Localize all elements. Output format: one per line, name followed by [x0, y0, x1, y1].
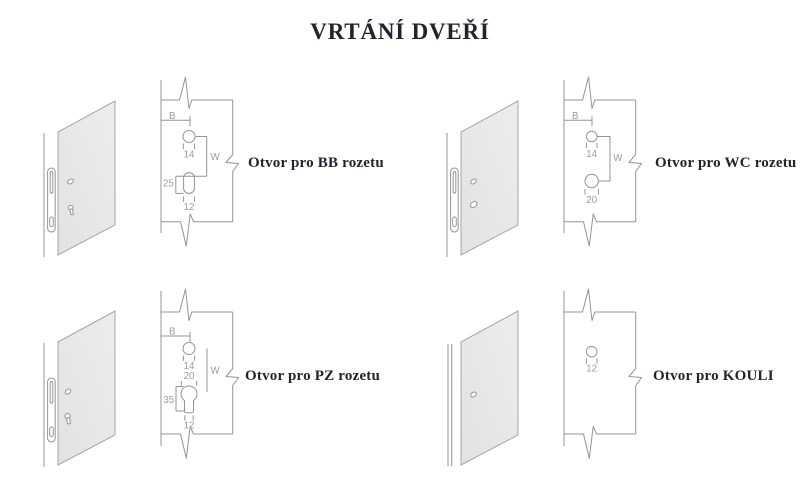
break-line-top — [564, 289, 636, 321]
door-illustration-pz — [44, 311, 115, 467]
drawing-bb: B 14 W 25 12 — [161, 77, 239, 246]
dim-20-label: 20 — [586, 195, 597, 206]
dim-12-label: 12 — [586, 364, 597, 375]
dim-14-ticks — [183, 144, 194, 150]
break-line-bottom — [161, 426, 233, 458]
diagram-canvas: B 14 W 25 12 B — [0, 0, 800, 499]
callout-kouli: Otvor pro KOULI — [653, 369, 774, 384]
handle-hole — [183, 131, 195, 143]
wc-turn-hole — [585, 174, 598, 187]
deadbolt-cutout — [453, 217, 457, 227]
break-line-top — [161, 289, 233, 321]
dim-20-ticks — [585, 189, 598, 195]
dim-w-label: W — [211, 366, 221, 377]
latch-cutout — [50, 172, 53, 194]
latch-cutout — [453, 172, 456, 194]
callout-pz: Otvor pro PZ rozetu — [245, 369, 380, 384]
door-drilling-diagram: VRTÁNÍ DVEŘÍ — [0, 0, 800, 499]
door-face — [58, 101, 115, 255]
dim-25-bracket — [176, 176, 184, 193]
break-line-right — [226, 100, 239, 222]
break-line-bottom — [564, 214, 636, 246]
dim-b-label: B — [169, 111, 175, 122]
door-illustration-bb — [44, 101, 115, 257]
break-line-right — [629, 312, 642, 434]
handle-hole — [586, 131, 597, 142]
dim-14-ticks — [586, 143, 597, 149]
break-line-top — [564, 77, 636, 109]
door-face — [461, 101, 518, 255]
door-illustration-kouli — [448, 311, 518, 466]
break-line-bottom — [161, 214, 233, 246]
dim-w-line — [597, 137, 610, 182]
drawing-kouli: 12 — [564, 289, 642, 458]
door-illustration-wc — [447, 101, 518, 257]
door-face — [58, 311, 115, 465]
drawing-pz: B 14 20 W 35 12 — [161, 289, 239, 458]
dim-20-label: 20 — [184, 371, 195, 382]
callout-bb: Otvor pro BB rozetu — [248, 156, 384, 171]
dim-35-label: 35 — [163, 395, 174, 406]
dim-14-label: 14 — [586, 149, 597, 160]
callout-wc: Otvor pro WC rozetu — [655, 156, 796, 171]
drawing-wc: B 14 W 20 — [564, 77, 642, 246]
dim-12-label: 12 — [184, 420, 195, 431]
latch-cutout — [50, 382, 53, 404]
break-line-right — [226, 312, 239, 434]
dim-25-label: 25 — [163, 179, 174, 190]
dim-b-label: B — [169, 327, 175, 338]
break-line-top — [161, 77, 233, 109]
handle-hole — [183, 343, 195, 355]
dim-w-label: W — [613, 153, 623, 164]
deadbolt-cutout — [50, 217, 54, 227]
dim-b-line — [161, 116, 190, 126]
dim-w-label: W — [211, 152, 221, 163]
knob-fixing-hole — [586, 346, 597, 357]
dim-12-label: 12 — [184, 202, 195, 213]
euro-cylinder-hole — [181, 386, 197, 413]
dim-b-line — [161, 332, 190, 342]
break-line-bottom — [564, 426, 636, 458]
dim-14-label: 14 — [184, 150, 195, 161]
cylinder-cutout — [50, 427, 54, 437]
dim-b-label: B — [572, 111, 578, 122]
door-face — [461, 311, 518, 465]
break-line-right — [629, 100, 642, 222]
